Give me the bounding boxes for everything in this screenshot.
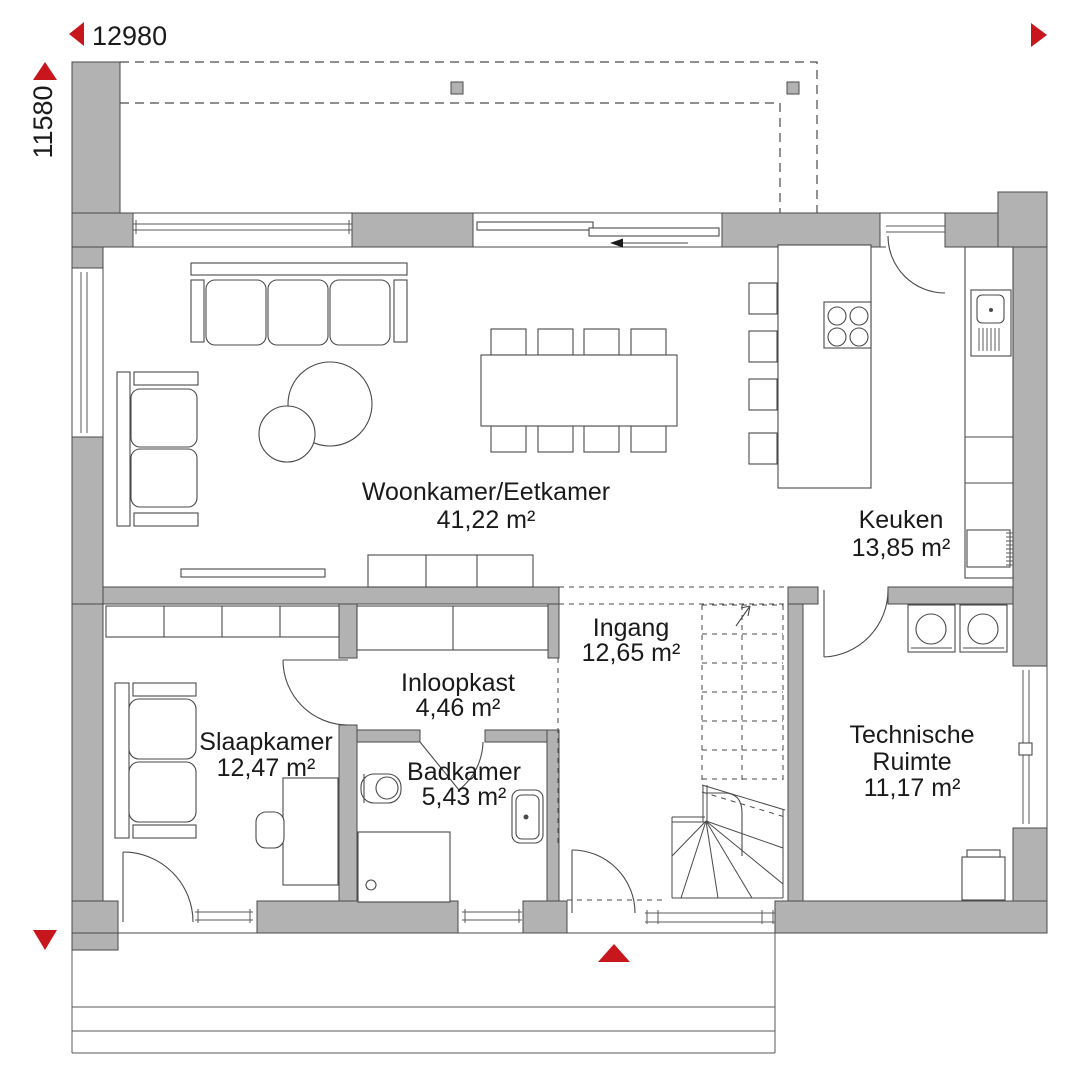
washbasin bbox=[512, 790, 543, 843]
window-south-entry-glass bbox=[645, 910, 775, 924]
washing-machine bbox=[908, 605, 955, 652]
window-south-bedroom bbox=[195, 909, 253, 923]
room-area-technische: 11,17 m² bbox=[864, 774, 961, 802]
staircase bbox=[672, 605, 785, 898]
dim-height-label: 11580 bbox=[28, 85, 58, 158]
sliding-door-arrow bbox=[610, 239, 623, 248]
cooktop bbox=[824, 302, 871, 348]
coffee-table-small bbox=[259, 406, 315, 462]
dining-table-set bbox=[481, 329, 677, 452]
oven-appliance bbox=[967, 530, 1013, 567]
room-area-badkamer: 5,43 m² bbox=[422, 783, 507, 811]
desk-chair bbox=[256, 812, 284, 848]
sofa-three-seat bbox=[191, 263, 407, 345]
room-label-slaapkamer: Slaapkamer bbox=[199, 728, 332, 756]
door-bedroom-closet bbox=[283, 660, 348, 725]
wall-cabinets bbox=[368, 555, 533, 587]
bedroom-closet bbox=[106, 606, 339, 637]
dim-arrow-up-icon bbox=[33, 62, 57, 80]
window-south-bathroom bbox=[462, 909, 522, 923]
dim-arrow-right-icon bbox=[1031, 23, 1047, 47]
furniture-living-room bbox=[117, 263, 677, 587]
room-label-woonkamer: Woonkamer/Eetkamer bbox=[362, 478, 610, 506]
room-label-inloopkast: Inloopkast bbox=[401, 669, 515, 697]
kitchen-island bbox=[778, 245, 871, 488]
dryer bbox=[960, 605, 1007, 652]
floorplan-drawing: 12980 11580 Woonkamer/Eetkamer 41,22 m² … bbox=[0, 0, 1080, 1080]
canopy-column bbox=[787, 82, 799, 94]
window-kitchen-door bbox=[886, 226, 945, 232]
window-west bbox=[74, 268, 99, 437]
sofa-two-seat bbox=[117, 372, 198, 526]
bar-stools bbox=[749, 283, 777, 464]
canopy-overhang bbox=[120, 62, 817, 213]
shower bbox=[358, 832, 450, 902]
kitchen-sink bbox=[971, 290, 1011, 356]
floorplan-page: 12980 11580 Woonkamer/Eetkamer 41,22 m² … bbox=[0, 0, 1080, 1080]
heat-pump bbox=[962, 850, 1005, 900]
stairs-up-arrow bbox=[736, 606, 750, 626]
door-technical-room bbox=[824, 590, 888, 657]
room-area-woonkamer: 41,22 m² bbox=[437, 506, 536, 534]
dim-arrow-left-icon bbox=[69, 22, 84, 46]
door-entry bbox=[567, 850, 667, 913]
door-kitchen-exterior bbox=[888, 236, 945, 293]
sliding-door bbox=[477, 222, 719, 248]
room-label-technische-line2: Ruimte bbox=[872, 748, 951, 776]
sideboard bbox=[181, 569, 325, 577]
room-label-technische-line1: Technische bbox=[849, 721, 974, 749]
room-label-badkamer: Badkamer bbox=[407, 758, 521, 786]
furniture-walkin-closet bbox=[357, 606, 548, 650]
room-area-inloopkast: 4,46 m² bbox=[416, 694, 501, 722]
room-labels: Woonkamer/Eetkamer 41,22 m² Keuken 13,85… bbox=[199, 478, 974, 811]
desk bbox=[256, 778, 338, 885]
dim-arrow-down-icon bbox=[33, 930, 57, 950]
toilet bbox=[361, 774, 401, 803]
window-north-left bbox=[133, 220, 352, 234]
terrace bbox=[72, 933, 775, 1053]
entrance-marker-icon bbox=[598, 944, 630, 962]
room-label-keuken: Keuken bbox=[859, 506, 944, 534]
room-label-ingang: Ingang bbox=[593, 614, 669, 642]
window-east-technical bbox=[1015, 666, 1047, 828]
door-bedroom-terrace bbox=[123, 852, 193, 922]
kitchen-counter bbox=[965, 247, 1013, 578]
bed bbox=[115, 683, 196, 838]
room-area-slaapkamer: 12,47 m² bbox=[217, 754, 316, 782]
room-area-ingang: 12,65 m² bbox=[582, 639, 681, 667]
dim-width-label: 12980 bbox=[92, 21, 167, 51]
canopy-column bbox=[451, 82, 463, 94]
room-area-keuken: 13,85 m² bbox=[852, 534, 951, 562]
